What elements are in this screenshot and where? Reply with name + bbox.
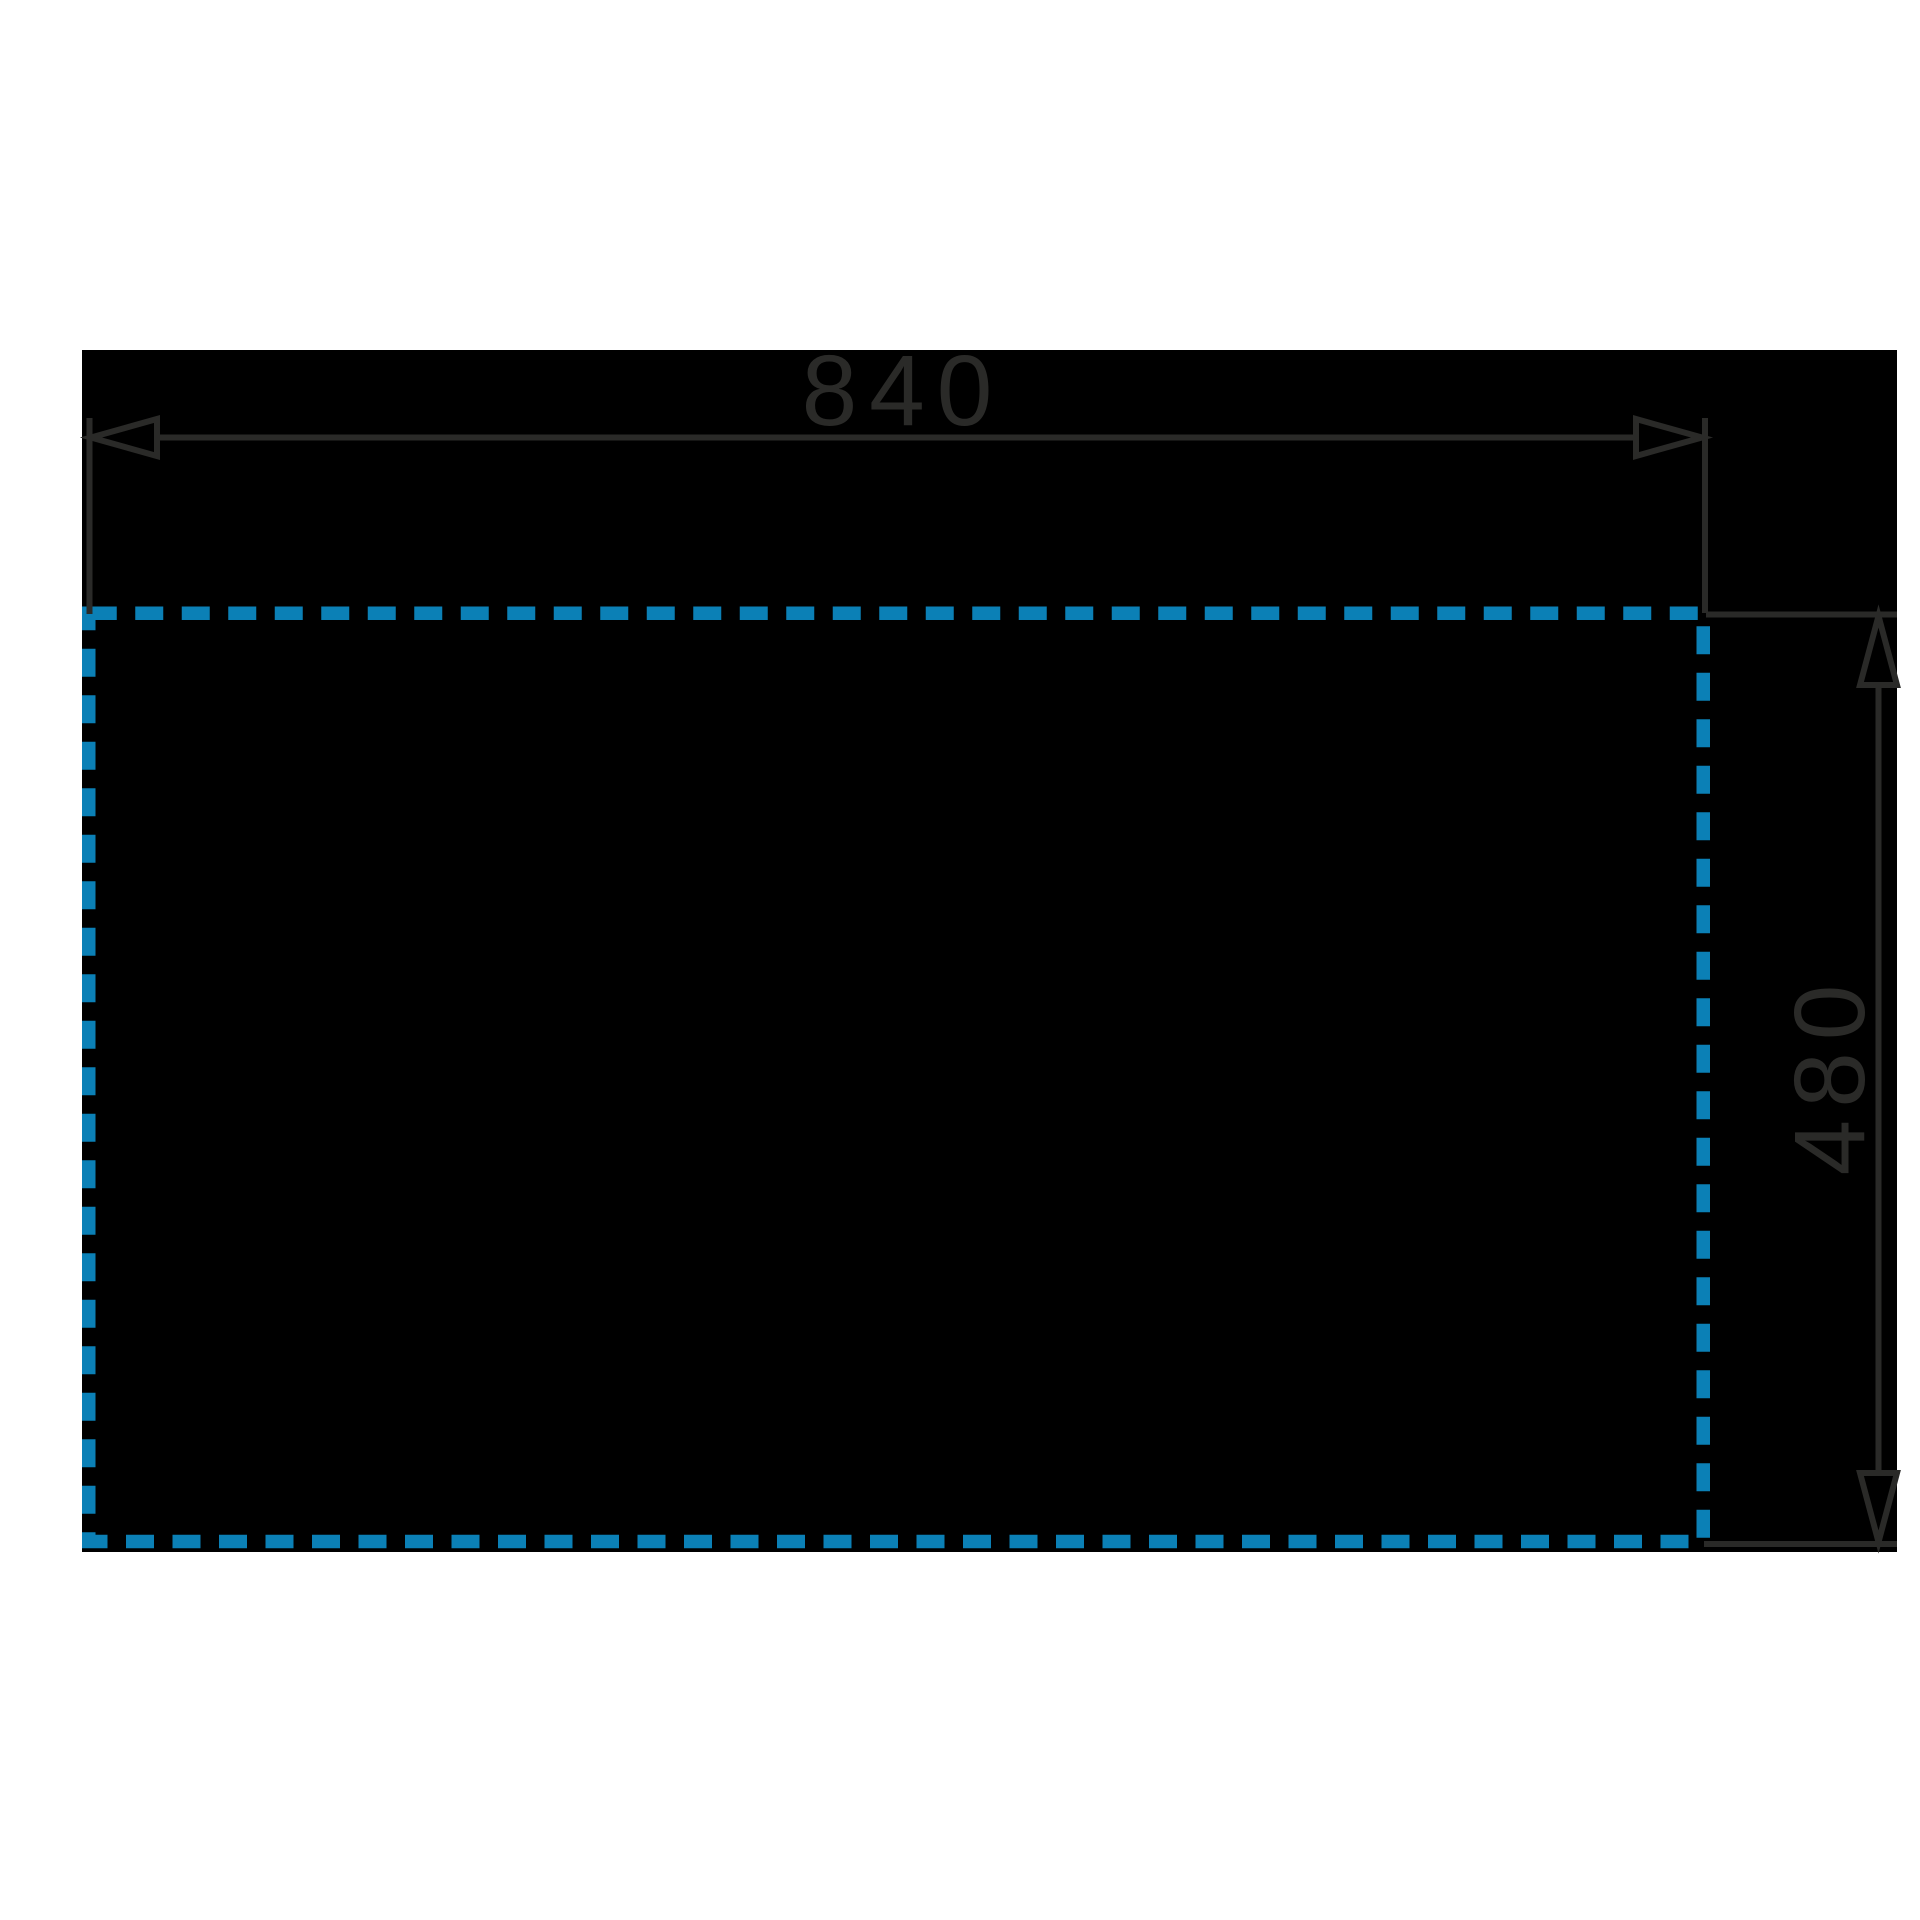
panel-background [82,350,1897,1552]
width-dim-label: 840 [802,335,1005,447]
technical-drawing-page: 840 480 [0,0,1920,1920]
height-dim-label: 480 [1774,973,1886,1176]
drawing-canvas: 840 480 [0,0,1920,1920]
